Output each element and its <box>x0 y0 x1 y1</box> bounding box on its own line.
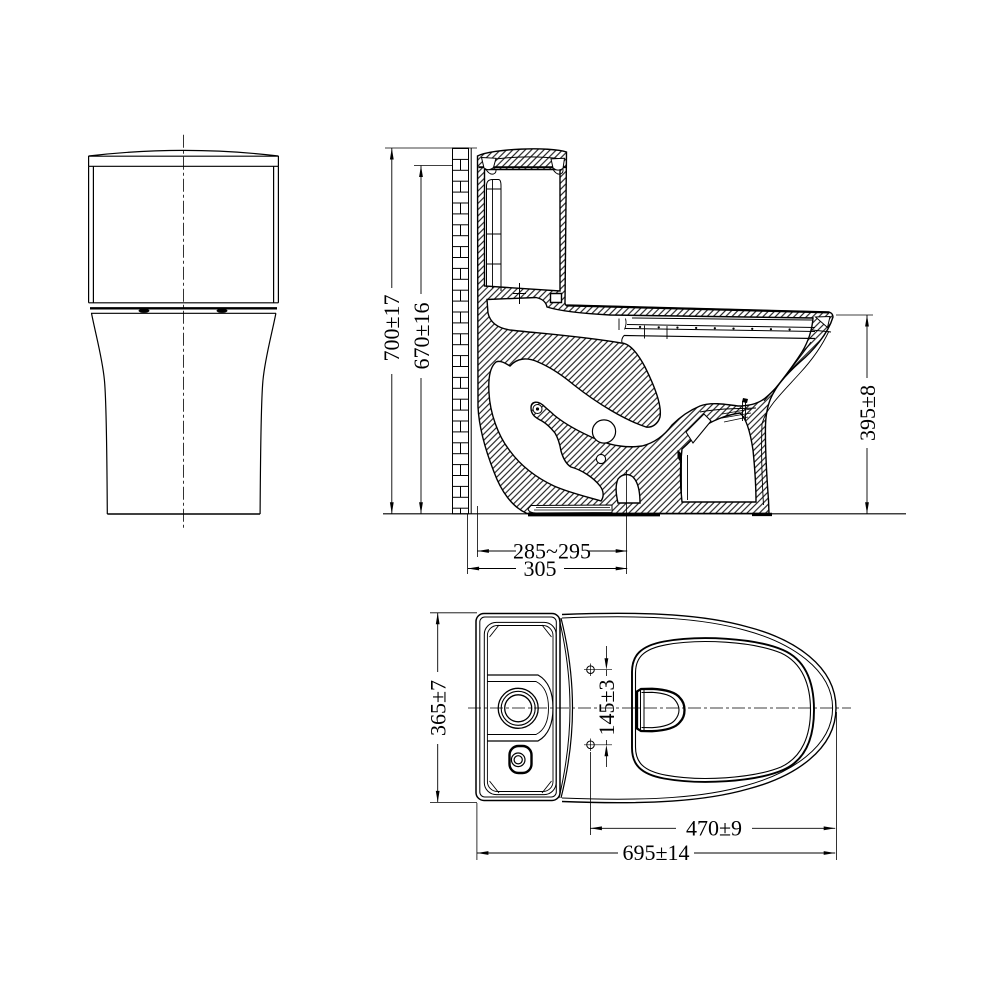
svg-text:470±9: 470±9 <box>686 815 742 840</box>
svg-text:395±8: 395±8 <box>855 385 880 441</box>
svg-text:365±7: 365±7 <box>426 680 451 736</box>
svg-text:670±16: 670±16 <box>409 302 434 369</box>
svg-text:695±14: 695±14 <box>622 840 689 865</box>
svg-text:700±17: 700±17 <box>379 294 404 361</box>
svg-text:305: 305 <box>524 556 557 581</box>
svg-text:145±3: 145±3 <box>594 679 619 735</box>
